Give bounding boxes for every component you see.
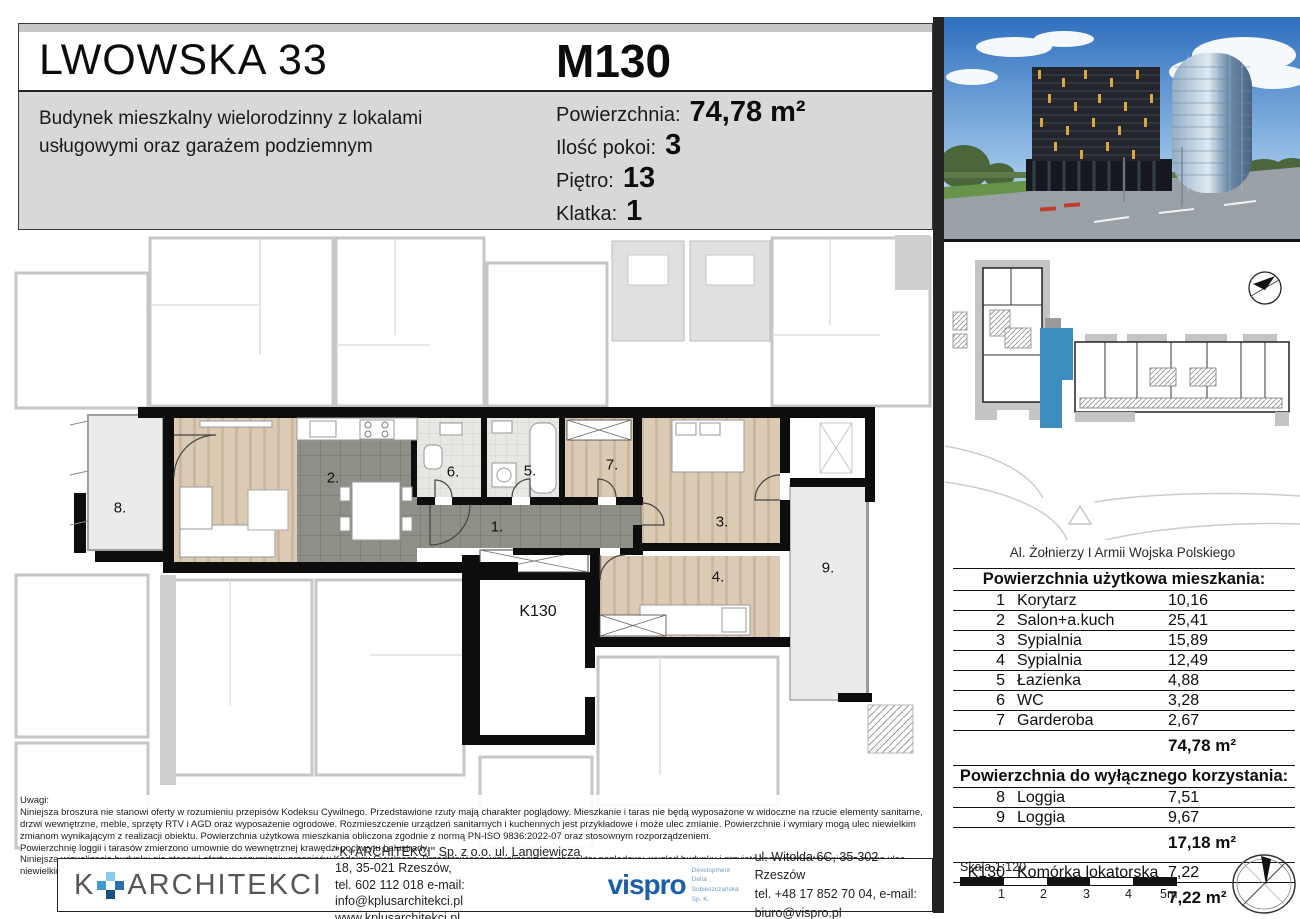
karchitekci-logo-k: K	[74, 869, 94, 902]
detail-label: Klatka:	[556, 203, 617, 226]
floor-plan-drawing	[0, 235, 935, 857]
tower-block	[953, 260, 1050, 420]
wc-sink-icon	[440, 423, 462, 435]
header-body: Budynek mieszkalny wielorodzinny z lokal…	[19, 92, 932, 229]
row-area: 12,49	[1168, 652, 1295, 670]
table-row: 7 Garderoba 2,67	[953, 711, 1295, 731]
room-label-loggia8: 8.	[114, 500, 127, 517]
karchitekci-logo: K ARCHITEKCI	[74, 869, 323, 902]
road-triangle-marker	[1069, 506, 1091, 524]
notes-title: Uwagi:	[20, 795, 928, 807]
building-rendering-illustration	[944, 17, 1300, 239]
building-right-tower	[1172, 53, 1252, 193]
karchitekci-logo-text: ARCHITEKCI	[127, 869, 323, 902]
table-row: 2 Salon+a.kuch 25,41	[953, 611, 1295, 631]
vispro-wordmark: vispro	[608, 869, 686, 901]
row-area: 25,41	[1168, 612, 1295, 630]
row-area: 10,16	[1168, 592, 1295, 610]
table-row: 3 Sypialnia 15,89	[953, 631, 1295, 651]
corridor-floor	[417, 505, 643, 548]
developer-phone-email[interactable]: tel. +48 17 852 70 04, e-mail: biuro@vis…	[755, 885, 932, 919]
room-label-garderoba: 7.	[606, 457, 619, 474]
vispro-subtext-line2: Delta Sobieszczańska Sp. K.	[692, 875, 739, 904]
detail-row-staircase: Klatka: 1	[556, 195, 806, 228]
notes-paragraph: Niniejsza broszura nie stanowi oferty w …	[20, 807, 928, 843]
site-plan-drawing	[945, 250, 1300, 540]
header: LWOWSKA 33 M130 Budynek mieszkalny wielo…	[18, 23, 933, 230]
scale-tick: 3	[1083, 887, 1090, 901]
row-area: 9,67	[1168, 809, 1295, 827]
table-row: 9 Loggia 9,67	[953, 808, 1295, 828]
room-label-sypialnia4: 4.	[712, 569, 725, 586]
unit-id: M130	[556, 34, 671, 88]
project-subtitle: Budynek mieszkalny wielorodzinny z lokal…	[39, 105, 459, 160]
room-label-wc: 6.	[447, 464, 460, 481]
street-label: Al. Żołnierzy I Armii Wojska Polskiego	[945, 545, 1300, 560]
usable-area-total: 74,78 m²	[1168, 736, 1236, 756]
room-label-lazienka: 5.	[524, 463, 537, 480]
row-number: 2	[953, 612, 1005, 630]
room-label-salon: 2.	[327, 470, 340, 487]
row-name: Korytarz	[1005, 592, 1168, 610]
storage-label-k130: K130	[519, 603, 556, 621]
row-number: 8	[953, 789, 1005, 807]
building-rendering-photo	[944, 17, 1300, 242]
developer-address: ul. Witolda 6C, 35-302 Rzeszów	[755, 848, 932, 886]
project-title: LWOWSKA 33	[39, 36, 328, 85]
scale-label: Skala 1:120	[960, 860, 1180, 874]
vispro-subtext-line1: Development	[692, 866, 739, 876]
building-left	[1026, 67, 1172, 191]
detail-value: 1	[626, 195, 642, 228]
scale-tick: 2	[1040, 887, 1047, 901]
detail-label: Piętro:	[556, 170, 614, 193]
scale-ticks: 1 2 3 4 5m	[960, 886, 1180, 902]
brochure-page: LWOWSKA 33 M130 Budynek mieszkalny wielo…	[0, 0, 1300, 919]
table-row: 4 Sypialnia 12,49	[953, 651, 1295, 671]
table-row: 8 Loggia 7,51	[953, 788, 1295, 808]
row-area: 2,67	[1168, 712, 1295, 730]
exclusive-area-total: 17,18 m²	[1168, 833, 1236, 853]
detail-value: 3	[665, 129, 681, 162]
developer-contact: ul. Witolda 6C, 35-302 Rzeszów tel. +48 …	[755, 848, 932, 919]
detail-row-area: Powierzchnia: 74,78 m²	[556, 96, 806, 129]
scale-bar-segments	[960, 877, 1177, 886]
toilet-icon	[424, 445, 442, 469]
exclusive-area-title: Powierzchnia do wyłącznego korzystania:	[953, 765, 1295, 788]
bathtub-icon	[530, 423, 556, 493]
north-compass-icon	[1228, 852, 1300, 916]
table-row: 5 Łazienka 4,88	[953, 671, 1295, 691]
coffee-table-icon	[248, 490, 288, 530]
scale-tick: 1	[998, 887, 1005, 901]
plus-squares-icon	[97, 872, 124, 899]
site-plan: Al. Żołnierzy I Armii Wojska Polskiego	[945, 250, 1300, 566]
room-label-loggia9: 9.	[822, 560, 835, 577]
row-number: 5	[953, 672, 1005, 690]
row-name: Garderoba	[1005, 712, 1168, 730]
detail-row-rooms: Ilość pokoi: 3	[556, 129, 806, 162]
detail-row-floor: Piętro: 13	[556, 162, 806, 195]
detail-label: Ilość pokoi:	[556, 137, 656, 160]
wing-block	[1075, 334, 1289, 426]
row-name: Loggia	[1005, 809, 1168, 827]
room-label-sypialnia3: 3.	[716, 514, 729, 531]
row-area: 15,89	[1168, 632, 1295, 650]
loggia-9-floor	[790, 485, 868, 700]
row-name: Sypialnia	[1005, 652, 1168, 670]
footer: K ARCHITEKCI "K+ARCHITEKCI" Sp. z o.o. u…	[57, 858, 933, 912]
row-area: 7,51	[1168, 789, 1295, 807]
row-name: Sypialnia	[1005, 632, 1168, 650]
row-name: Łazienka	[1005, 672, 1168, 690]
row-number: 4	[953, 652, 1005, 670]
header-top-strip	[19, 24, 932, 32]
row-name: Loggia	[1005, 789, 1168, 807]
highlighted-unit	[1040, 318, 1073, 428]
row-number: 1	[953, 592, 1005, 610]
architect-contact: "K+ARCHITEKCI" Sp. z o.o. ul. Langiewicz…	[335, 844, 592, 919]
vispro-logo: vispro Development Delta Sobieszczańska …	[608, 866, 739, 905]
washing-machine-icon	[492, 463, 516, 487]
table-row: 1 Korytarz 10,16	[953, 591, 1295, 611]
header-title-row: LWOWSKA 33 M130	[19, 32, 932, 92]
detail-value: 13	[623, 162, 655, 195]
usable-area-title: Powierzchnia użytkowa mieszkania:	[953, 568, 1295, 591]
roads	[945, 446, 1300, 540]
detail-label: Powierzchnia:	[556, 104, 681, 127]
room-label-korytarz: 1.	[491, 519, 504, 536]
usable-area-total-row: 74,78 m²	[953, 731, 1295, 765]
detail-value: 74,78 m²	[690, 96, 806, 129]
vispro-subtext: Development Delta Sobieszczańska Sp. K.	[692, 866, 739, 905]
row-number: 3	[953, 632, 1005, 650]
row-area: 4,88	[1168, 672, 1295, 690]
row-number: 6	[953, 692, 1005, 710]
unit-details: Powierzchnia: 74,78 m² Ilość pokoi: 3 Pi…	[556, 96, 806, 228]
dining-table-icon	[352, 482, 400, 540]
bath-sink-icon	[492, 421, 512, 433]
architect-address: "K+ARCHITEKCI" Sp. z o.o. ul. Langiewicz…	[335, 844, 592, 877]
loggia-8-floor	[88, 415, 163, 550]
scale-bar: Skala 1:120 1 2 3 4 5m	[960, 860, 1180, 902]
tv-cabinet-icon	[200, 421, 272, 427]
row-name: WC	[1005, 692, 1168, 710]
floor-plan: 1. 2. 3. 4. 5. 6. 7. 8. 9. K130	[0, 235, 935, 857]
row-number: 9	[953, 809, 1005, 827]
table-row: 6 WC 3,28	[953, 691, 1295, 711]
row-area: 3,28	[1168, 692, 1295, 710]
architect-phone-email[interactable]: tel. 602 112 018 e-mail: info@kplusarchi…	[335, 877, 592, 910]
architect-website[interactable]: www.kplusarchitekci.pl	[335, 910, 592, 919]
row-name: Salon+a.kuch	[1005, 612, 1168, 630]
site-compass-icon	[1249, 272, 1281, 304]
scale-tick: 4	[1125, 887, 1132, 901]
row-number: 7	[953, 712, 1005, 730]
hob-icon	[360, 420, 394, 439]
scale-tick: 5m	[1160, 887, 1177, 901]
